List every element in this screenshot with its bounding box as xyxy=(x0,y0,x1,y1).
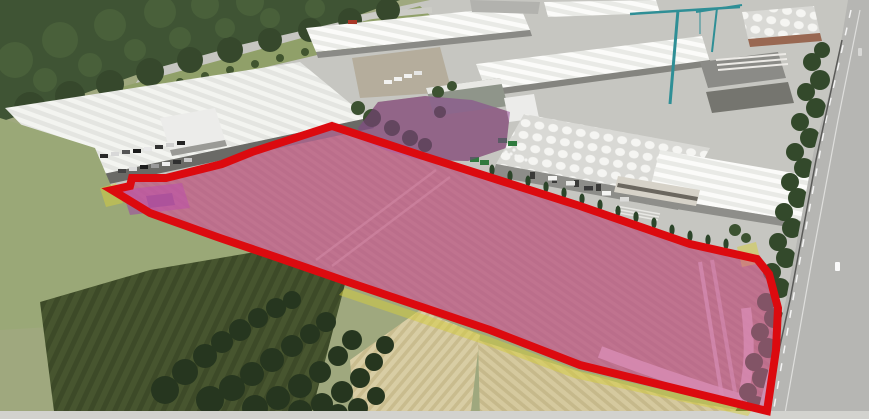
highlighted-land-parcel xyxy=(112,126,778,411)
parcel-annotation-overlay xyxy=(0,0,869,419)
annotations-group xyxy=(100,96,778,416)
aerial-photo xyxy=(0,0,869,419)
